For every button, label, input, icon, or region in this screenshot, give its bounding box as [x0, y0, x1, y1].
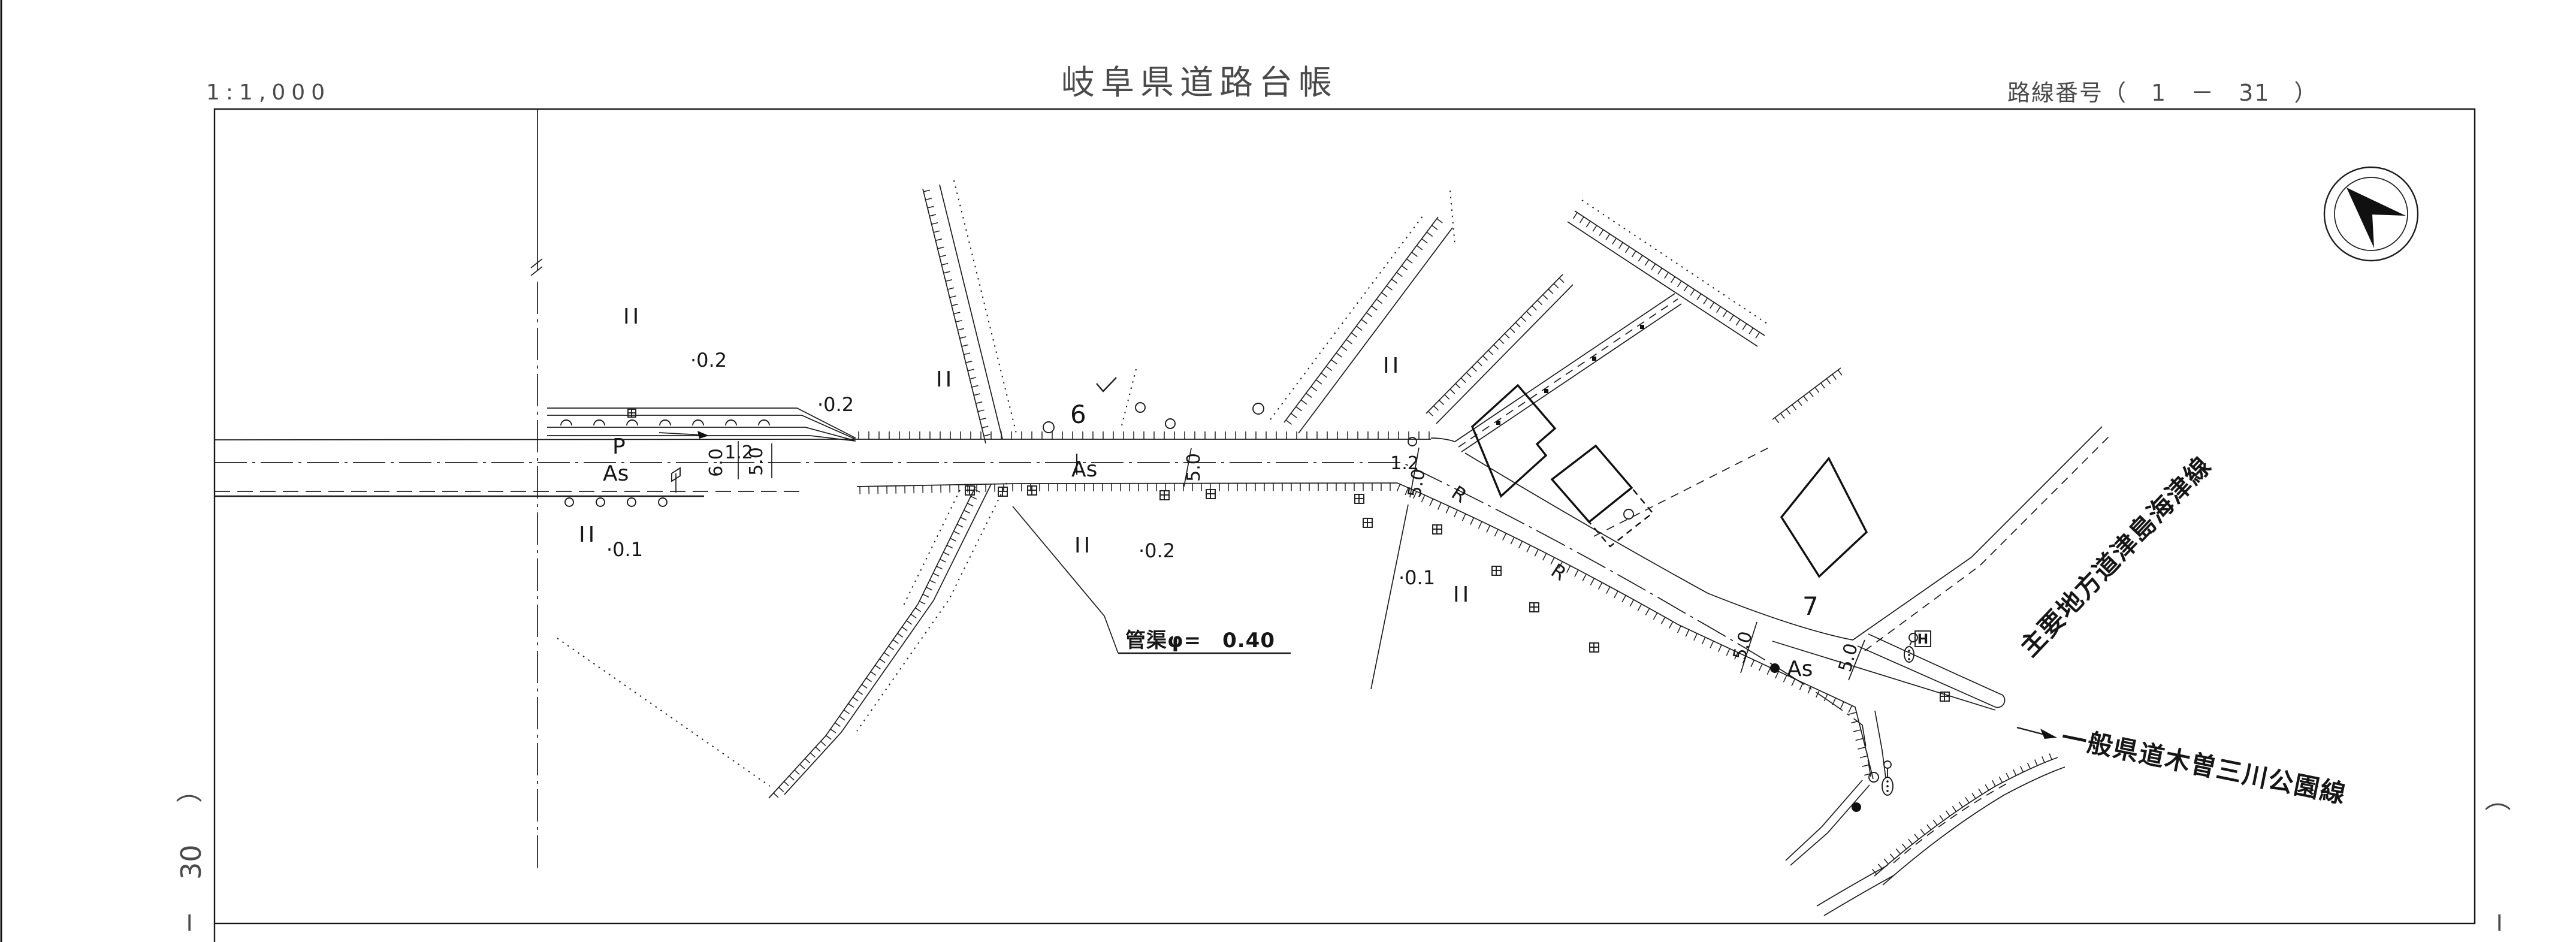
road-centerline: [215, 463, 1871, 777]
building-2-annex: [1589, 488, 1653, 547]
culvert-annotation: 管渠φ= 0.40: [1013, 506, 1291, 653]
hatch-ticks: [1286, 219, 1442, 424]
check-mark: [1097, 378, 1116, 391]
left-dash: −: [174, 911, 204, 934]
svg-text:II: II: [936, 367, 955, 392]
boundary-line: [531, 110, 542, 870]
hatch-ticks: [774, 489, 980, 797]
utility-symbols: H: [628, 403, 1949, 795]
svg-text:II: II: [1383, 354, 1402, 378]
left-paren: ）: [175, 777, 206, 803]
manhole-symbols: [1043, 403, 1633, 519]
ditch-v-left: [1270, 214, 1452, 433]
svg-text:5.0: 5.0: [1729, 629, 1757, 662]
station-6: 6: [1070, 400, 1086, 429]
roadside-sign: [672, 468, 680, 493]
main-road: [215, 431, 1871, 777]
svg-text:5.0: 5.0: [1835, 641, 1862, 674]
svg-text:6.0: 6.0: [706, 448, 727, 477]
hatch-ticks: [1775, 370, 1842, 422]
buildings: [1472, 385, 1867, 576]
hydrant-symbol: H: [1915, 631, 1931, 647]
lane-to-building: [1594, 448, 1768, 536]
hatch-ticks: [1574, 213, 1760, 339]
catch-basin-symbols: [628, 409, 1949, 701]
svg-text:5.0: 5.0: [746, 447, 767, 476]
building-3: [1781, 458, 1867, 576]
station-7: 7: [1802, 591, 1819, 621]
offset-labels: ·0.2 ·0.2 ·0.2 ·0.1 ·0.1: [606, 349, 1435, 589]
adjacent-sheet-left: ） 30 −: [174, 777, 207, 934]
svg-text:一般県道木曽三川公園線: 一般県道木曽三川公園線: [2059, 723, 2349, 810]
sheet-title: 岐阜県道路台帳: [1061, 64, 1338, 102]
ditch-culvert: [769, 180, 1017, 798]
svg-text:H: H: [1917, 632, 1928, 647]
property-line-2: [1371, 505, 1408, 689]
road-sign-symbols: [1882, 633, 1917, 795]
svg-text:II: II: [623, 304, 642, 329]
left-sheet-number: 30: [175, 844, 207, 880]
svg-text:II: II: [1074, 533, 1093, 558]
hatch-ticks: [1429, 278, 1565, 416]
right-dash: −: [2484, 911, 2514, 934]
svg-text:·0.2: ·0.2: [690, 349, 727, 372]
route-number-label: 路線番号（ 1 － 31 ）: [2007, 80, 2318, 106]
road-name-general: 一般県道木曽三川公園線: [2017, 723, 2349, 810]
dotted-path: [1450, 191, 1455, 244]
dotted-levee: [557, 638, 770, 786]
bottom-roads: [1817, 753, 2065, 916]
svg-text:·0.1: ·0.1: [606, 538, 643, 561]
dotted-path-2: [1122, 369, 1136, 425]
svg-text:II: II: [1453, 582, 1472, 607]
embankment-upper: [1568, 200, 1842, 423]
right-paren: （: [2481, 785, 2512, 811]
svg-text:·0.1: ·0.1: [1399, 566, 1435, 589]
scale-label: 1:1,000: [206, 80, 331, 105]
parking-label: P: [612, 434, 626, 459]
svg-text:5.0: 5.0: [1404, 467, 1430, 499]
pavement-label: As: [603, 461, 629, 486]
parking-strip: [547, 408, 856, 441]
dimension-texts: 6.0 1.2 5.0 5.0 1.2 5.0 5.0 5.0: [706, 442, 1862, 674]
lane-northeast: [1455, 294, 1681, 452]
svg-text:5.0: 5.0: [1183, 453, 1204, 482]
building-2: [1552, 446, 1632, 522]
hatch-ticks: [859, 431, 1429, 439]
adjacent-sheet-right: （ −: [2481, 785, 2514, 934]
hatch-ticks: [1397, 484, 1871, 775]
dimension-lines: [738, 441, 1865, 680]
road-name-major: 主要地方道津島海津線: [2015, 451, 2217, 662]
hatch-ticks: [923, 190, 990, 436]
north-arrow-icon: [2324, 167, 2418, 261]
pavement-label: As: [1787, 657, 1813, 681]
svg-text:II: II: [579, 523, 597, 547]
culvert-label: 管渠φ= 0.40: [1125, 629, 1275, 653]
road-ledger-sheet: 1:1,000 岐阜県道路台帳 路線番号（ 1 － 31 ） ） 30 − （ …: [0, 0, 2576, 942]
hedge-arcs: [561, 420, 769, 425]
south-branch-road: [1786, 772, 1879, 865]
major-road-branch: [1853, 427, 2109, 708]
pavement-label: As: [1071, 457, 1097, 482]
fence-circles: [565, 498, 667, 506]
svg-text:·0.2: ·0.2: [1138, 539, 1175, 562]
svg-text:·0.2: ·0.2: [817, 393, 854, 416]
